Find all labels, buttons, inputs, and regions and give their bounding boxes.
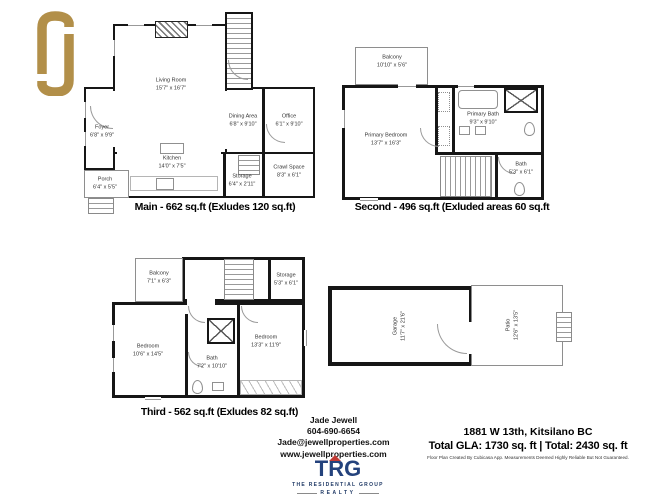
wall (452, 85, 455, 152)
property-address: 1881 W 13th, Kitsilano BC (413, 426, 643, 438)
room-label-foyer: Foyer6'8" x 9'9" (90, 124, 114, 139)
toilet (514, 182, 525, 196)
window (111, 325, 116, 341)
second-floor-caption: Second - 496 sq.ft (Exluded areas 60 sq.… (337, 201, 567, 213)
agent-email: Jade@jewellproperties.com (256, 437, 411, 448)
closet (240, 380, 302, 395)
trg-realty-label: REALTY (320, 490, 355, 496)
closet (438, 92, 450, 112)
stairs (224, 259, 254, 300)
wall (223, 152, 226, 198)
room-label-balcony: Balcony10'10" x 5'6" (377, 54, 407, 69)
property-info-block: 1881 W 13th, Kitsilano BC Total GLA: 173… (413, 426, 643, 460)
agent-contact-block: Jade Jewell 604-690-6654 Jade@jewellprop… (256, 415, 411, 460)
room-label-bath: Bath7'2" x 10'10" (197, 355, 227, 370)
sink (475, 126, 486, 135)
shower (207, 318, 235, 344)
trg-wordmark: TRG (277, 458, 399, 480)
window (128, 23, 144, 28)
agent-phone: 604-690-6654 (256, 426, 411, 437)
sink (459, 126, 470, 135)
room-label-bedroom-left: Bedroom10'6" x 14'5" (133, 343, 163, 358)
trg-letter-r: R (328, 458, 344, 480)
trg-letter-g: G (344, 456, 361, 481)
trg-logo: TRG THE RESIDENTIAL GROUP REALTY (277, 458, 399, 496)
kitchen-counter (130, 176, 218, 191)
shower (504, 88, 538, 113)
stairs (238, 155, 260, 175)
stairs (556, 312, 572, 342)
room-label-crawl-space: Crawl Space8'3" x 6'1" (273, 164, 304, 179)
room-label-kitchen: Kitchen14'0" x 7'5" (158, 155, 185, 170)
wall (262, 87, 265, 154)
agent-name: Jade Jewell (256, 415, 411, 426)
room-label-bedroom-right: Bedroom13'3" x 11'9" (251, 334, 281, 349)
fj-monogram-logo (28, 10, 84, 96)
room-label-garage: Garage11'7" x 21'6" (392, 311, 407, 341)
wall (435, 152, 544, 155)
window (342, 110, 347, 128)
closet (438, 126, 450, 146)
room-label-storage: Storage6'4" x 2'11" (229, 173, 256, 188)
property-totals: Total GLA: 1730 sq. ft | Total: 2430 sq.… (413, 440, 643, 452)
room-label-living-room: Living Room15'7" x 16'7" (156, 77, 187, 92)
wall (262, 152, 265, 198)
window (83, 132, 88, 146)
fireplace (155, 21, 188, 38)
room-label-storage: Storage5'3" x 6'1" (274, 272, 298, 287)
window (145, 397, 161, 402)
room-label-dining-area: Dining Area6'8" x 9'10" (229, 113, 257, 128)
trg-letter-t: T (315, 456, 328, 481)
divider (359, 493, 379, 494)
trg-subtitle: THE RESIDENTIAL GROUP (277, 482, 399, 488)
wall (185, 314, 188, 398)
window (112, 40, 117, 56)
window (458, 84, 474, 89)
opening (187, 299, 215, 305)
main-floor-caption: Main - 662 sq.ft (Exludes 120 sq.ft) (90, 201, 340, 213)
toilet (192, 380, 203, 394)
trg-realty-row: REALTY (277, 490, 399, 496)
wall (268, 257, 271, 302)
room-label-office: Office6'1" x 9'10" (275, 113, 302, 128)
sink (212, 382, 224, 391)
wall (495, 154, 498, 200)
room-label-primary-bath: Primary Bath9'3" x 9'10" (467, 111, 499, 126)
kitchen-island (160, 143, 184, 154)
toilet (524, 122, 535, 136)
room-label-primary-bedroom: Primary Bedroom13'7" x 16'3" (365, 132, 408, 147)
window (304, 330, 309, 346)
window (196, 23, 212, 28)
window (398, 84, 416, 89)
room-label-balcony: Balcony7'1" x 6'3" (147, 270, 171, 285)
roof-icon (329, 455, 341, 461)
disclaimer-text: Floor Plan Created By Cubicasa App. Meas… (413, 455, 643, 460)
stove (156, 178, 174, 190)
room-label-porch: Porch6'4" x 5'5" (93, 176, 117, 191)
window (111, 358, 116, 372)
floor-plan-sheet: Living Room15'7" x 16'7" Foyer6'8" x 9'9… (0, 0, 667, 500)
stairs (440, 156, 492, 197)
bathtub (458, 90, 498, 109)
room-label-patio: Patio12'6" x 13'5" (505, 310, 520, 340)
window (83, 102, 88, 118)
room-label-bath: Bath5'3" x 6'1" (509, 161, 533, 176)
divider (297, 493, 317, 494)
